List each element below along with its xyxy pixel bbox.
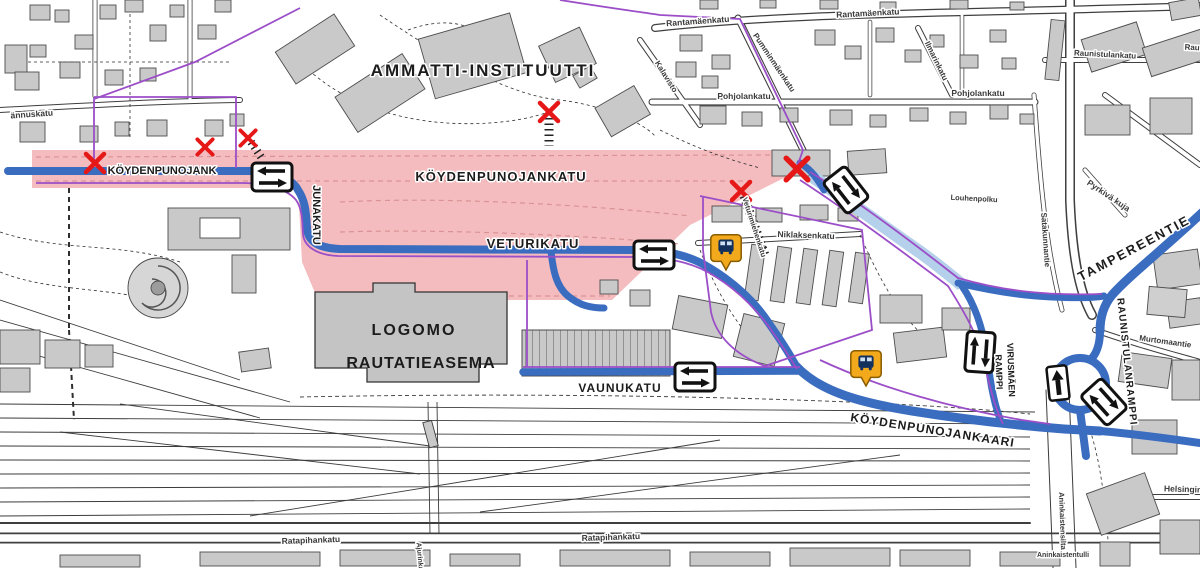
area-label-ammatti-instituutti: AMMATTI-INSTITUUTTI [371, 61, 596, 80]
road-closed-x-icon [240, 130, 255, 145]
street-label-niklaksenkatu: Niklaksenkatu [777, 229, 834, 241]
street-label-virusmaen: VIRUSMÄEN [1005, 343, 1017, 397]
street-label-veturikatu: VETURIKATU [487, 236, 580, 251]
buildings-layer [0, 0, 1200, 567]
street-label-junakatu: JUNAKATU [310, 185, 322, 245]
street-label-pyrkiva-kuja: Pyrkivä kuja [1085, 177, 1132, 213]
bus-stop-icon [851, 351, 881, 386]
street-label-ratapihankatu-1: Ratapihankatu [281, 534, 340, 546]
street-label-ramppi: RAMPPI [993, 354, 1004, 389]
street-label-satakunnantie: Satakunnantie [1039, 212, 1052, 268]
street-label-pohjolankatu-1: Pohjolankatu [717, 91, 770, 101]
map-canvas: AMMATTI-INSTITUUTTI KÖYDENPUNOJANK KÖYDE… [0, 0, 1200, 568]
one-way-traffic-sign-icon [1046, 365, 1069, 401]
street-label-louhenpolku: Louhenpolku [950, 193, 998, 204]
street-label-annuskatu: ännuskatu [10, 108, 53, 121]
street-label-ratapihankatu-2: Ratapihankatu [581, 531, 640, 543]
city-map: AMMATTI-INSTITUUTTI KÖYDENPUNOJANK KÖYDE… [0, 0, 1200, 568]
street-label-koydenpunojankatu: KÖYDENPUNOJANKATU [415, 169, 586, 184]
two-way-traffic-sign-icon [634, 241, 674, 269]
two-way-traffic-sign-icon [675, 363, 715, 391]
two-way-traffic-sign-icon [965, 331, 996, 373]
building-label-rautatieasema: RAUTATIEASEMA [346, 355, 495, 372]
bus-stop-icon [711, 235, 741, 270]
two-way-traffic-sign-icon [1080, 378, 1128, 426]
two-way-traffic-sign-icon [252, 163, 292, 191]
building-label-logomo: LOGOMO [372, 322, 457, 339]
street-label-vaunukatu: VAUNUKATU [578, 381, 661, 395]
street-label-aninkaistentulli: Aninkaistentulli [1037, 552, 1089, 559]
street-label-koydenpunojank: KÖYDENPUNOJANK [108, 164, 217, 177]
street-label-rau-fragment: Rau [1184, 43, 1200, 53]
street-label-pohjolankatu-2: Pohjolankatu [951, 88, 1004, 98]
street-label-kalavisto: Kalavisto [653, 59, 680, 94]
street-label-helsingin: Helsingin [1164, 483, 1200, 494]
